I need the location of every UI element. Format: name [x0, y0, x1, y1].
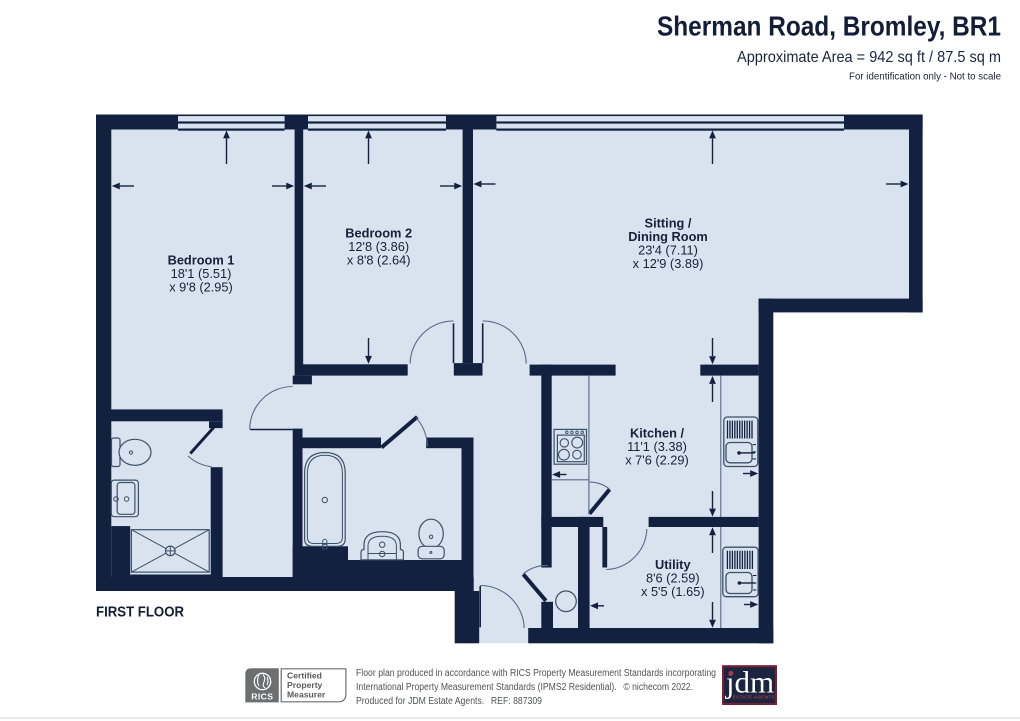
svg-text:x 8'8 (2.64): x 8'8 (2.64): [347, 252, 411, 267]
svg-text:Sherman Road, Bromley, BR1: Sherman Road, Bromley, BR1: [657, 11, 1001, 42]
svg-text:Produced for JDM Estate Agents: Produced for JDM Estate Agents. REF: 887…: [356, 696, 542, 707]
svg-text:x 12'9 (3.89): x 12'9 (3.89): [633, 256, 704, 271]
svg-text:x 9'8 (2.95): x 9'8 (2.95): [169, 280, 233, 295]
svg-text:RICS: RICS: [251, 692, 273, 702]
svg-text:ESTATE AGENTS: ESTATE AGENTS: [733, 695, 775, 700]
svg-text:Certified: Certified: [287, 671, 322, 681]
svg-text:International Property Measure: International Property Measurement Stand…: [356, 682, 693, 693]
svg-text:Approximate Area = 942 sq ft /: Approximate Area = 942 sq ft / 87.5 sq m: [737, 49, 1001, 66]
svg-text:Property: Property: [287, 680, 323, 690]
svg-text:Measurer: Measurer: [287, 690, 326, 700]
svg-text:Floor plan produced in accorda: Floor plan produced in accordance with R…: [356, 668, 716, 679]
svg-text:For identification only - Not: For identification only - Not to scale: [849, 71, 1001, 83]
svg-text:x 7'6 (2.29): x 7'6 (2.29): [625, 453, 689, 468]
svg-text:x 5'5 (1.65): x 5'5 (1.65): [641, 584, 705, 599]
svg-text:FIRST FLOOR: FIRST FLOOR: [96, 605, 185, 621]
